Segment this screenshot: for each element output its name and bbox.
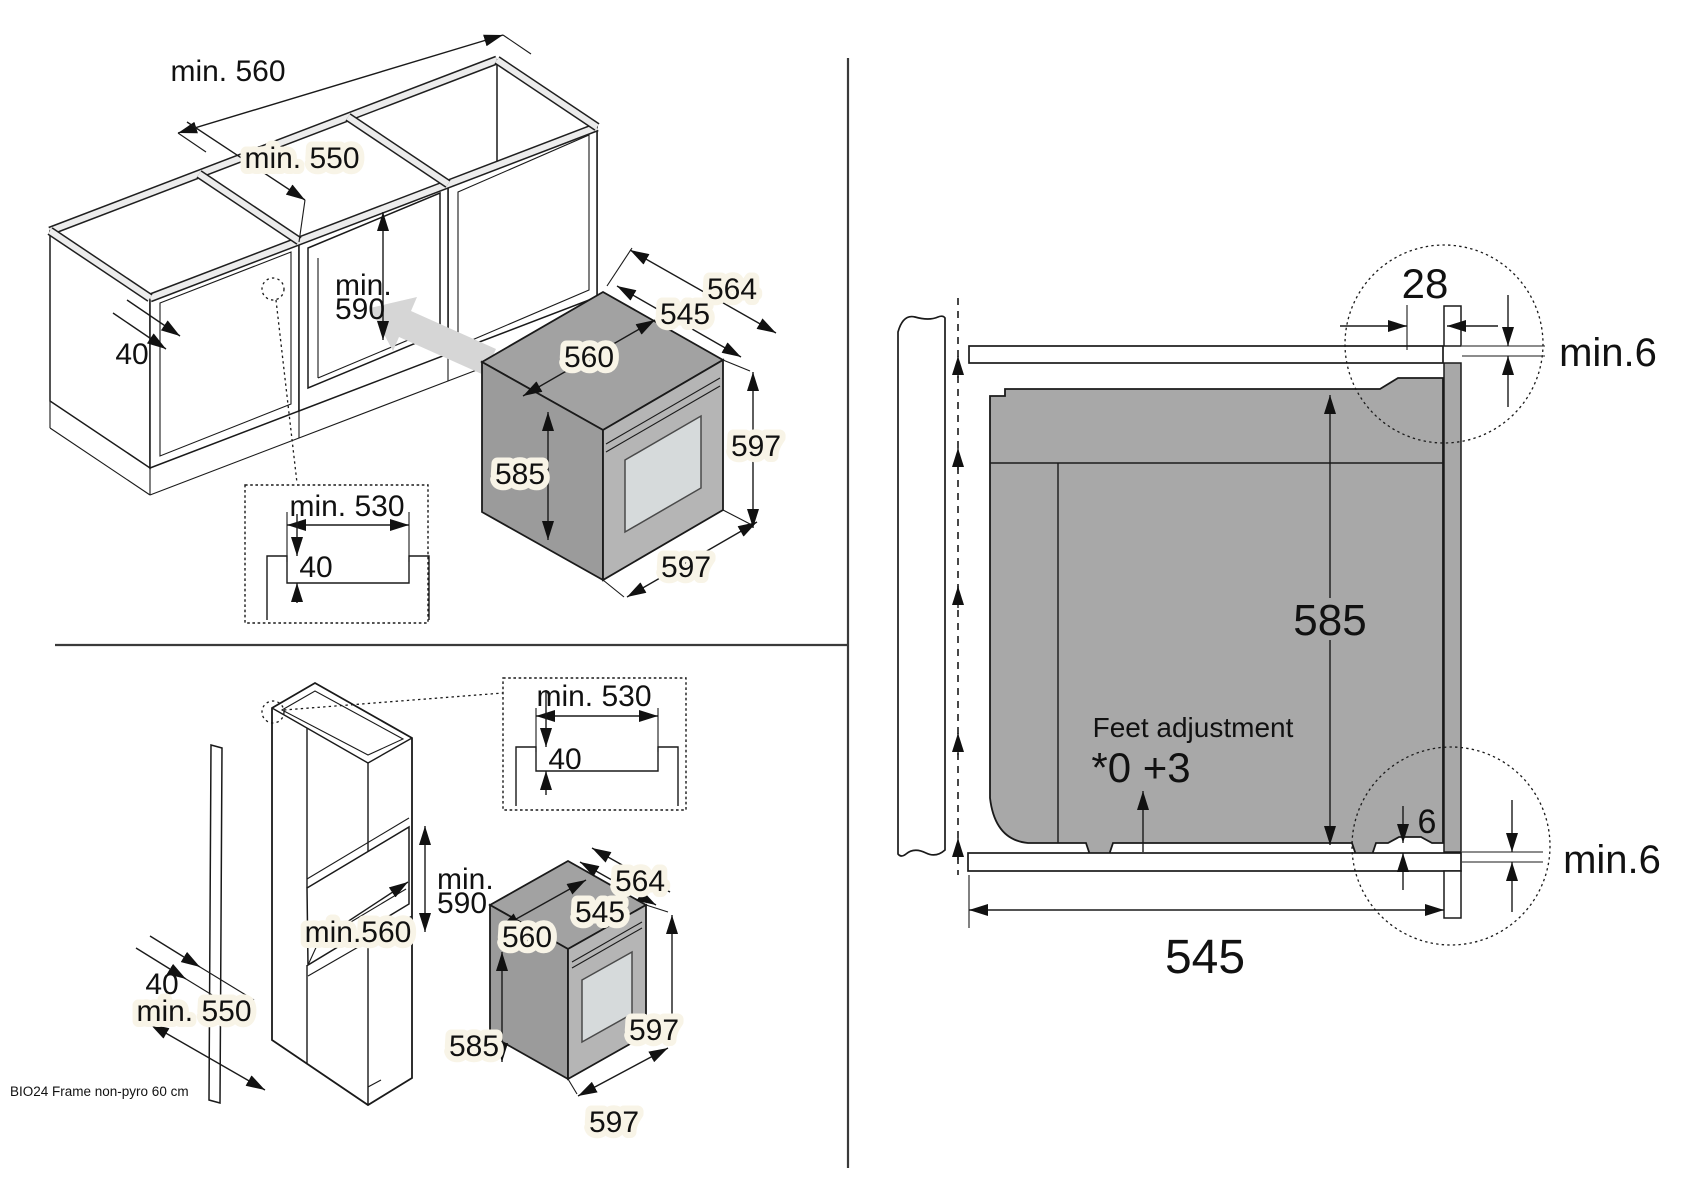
base-rail-profile <box>267 556 429 620</box>
feet-adjustment-values: *0 +3 <box>1091 744 1190 791</box>
installation-drawing-page: min. 560 min. 550 min. 590 40 min. 530 4… <box>0 0 1697 1200</box>
bottom-shelf <box>968 853 1461 871</box>
dim-base-niche-width: min. 560 <box>170 55 285 88</box>
model-label: BIO24 Frame non-pyro 60 cm <box>10 1084 189 1099</box>
tall-rear-panel <box>209 745 222 1103</box>
dim-body-height: 585 <box>1293 596 1366 645</box>
front-frame-strip <box>1444 363 1461 852</box>
dim-base-oven-height-front: 597 <box>731 430 781 463</box>
dim-base-oven-depth-body: 545 <box>660 298 710 331</box>
dim-body-depth: 545 <box>1165 931 1245 984</box>
tall-rail-inset: min. 530 40 <box>503 678 686 810</box>
dim-tall-niche-depth: min. 550 <box>136 995 251 1028</box>
base-rail-inset: min. 530 40 <box>245 485 429 623</box>
base-left-door <box>150 241 299 468</box>
dim-base-inset-width: min. 530 <box>289 490 404 523</box>
dim-base-niche-height-2: 590 <box>335 293 385 326</box>
dim-bottom-clearance: min.6 <box>1563 838 1661 882</box>
dim-base-niche-depth: min. 550 <box>244 142 359 175</box>
dim-tall-oven-height-front: 597 <box>629 1014 679 1047</box>
tall-rail-profile <box>516 747 678 806</box>
feet-adjustment-label: Feet adjustment <box>1093 712 1294 743</box>
dim-tall-niche-height-2: 590 <box>437 887 487 920</box>
dim-tall-oven-width-front: 597 <box>589 1106 639 1139</box>
dim-base-inset-recess: 40 <box>299 551 332 584</box>
dim-base-front-rail: 40 <box>115 338 148 371</box>
dim-top-clearance: min.6 <box>1559 331 1657 375</box>
dim-base-oven-depth-total: 564 <box>707 273 757 306</box>
dim-front-offset: 28 <box>1402 260 1449 307</box>
section-view <box>898 245 1550 945</box>
dim-bottom-gap: 6 <box>1418 803 1437 841</box>
dim-base-oven-width: 560 <box>564 341 614 374</box>
dim-base-oven-height-body: 585 <box>495 458 545 491</box>
dim-tall-oven-height-body: 585 <box>449 1030 499 1063</box>
wall-panel <box>898 316 945 856</box>
dim-tall-niche-width: min.560 <box>305 916 412 949</box>
front-frame-bottom-lip <box>1444 871 1461 918</box>
dim-tall-oven-depth-total: 564 <box>615 865 665 898</box>
drawing-canvas: min. 560 min. 550 min. 590 40 min. 530 4… <box>0 0 1697 1200</box>
dim-base-oven-width-front: 597 <box>661 551 711 584</box>
dim-tall-inset-width: min. 530 <box>536 680 651 713</box>
worktop <box>969 346 1443 363</box>
dim-tall-oven-width: 560 <box>502 921 552 954</box>
dim-tall-oven-depth-body: 545 <box>575 896 625 929</box>
